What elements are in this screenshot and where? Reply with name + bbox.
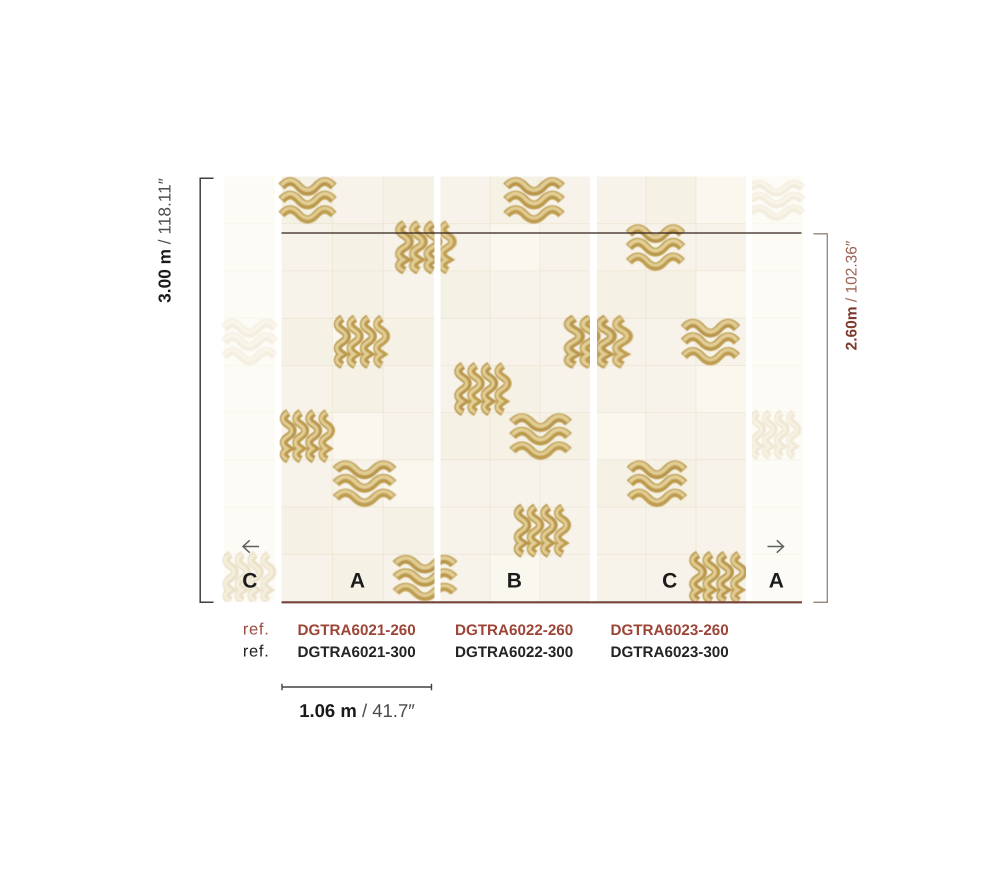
svg-text:3.00 m / 118.11″: 3.00 m / 118.11″ xyxy=(155,178,175,303)
svg-text:C: C xyxy=(662,569,677,592)
svg-text:DGTRA6023-300: DGTRA6023-300 xyxy=(611,644,729,661)
svg-text:DGTRA6023-260: DGTRA6023-260 xyxy=(611,622,729,639)
svg-text:C: C xyxy=(242,569,257,592)
svg-text:A: A xyxy=(350,569,365,592)
svg-text:DGTRA6022-260: DGTRA6022-260 xyxy=(455,622,573,639)
svg-text:A: A xyxy=(769,569,784,592)
svg-text:2.60m / 102.36″: 2.60m / 102.36″ xyxy=(844,240,861,350)
svg-text:ref.: ref. xyxy=(243,621,270,639)
svg-text:DGTRA6022-300: DGTRA6022-300 xyxy=(455,644,573,661)
svg-text:B: B xyxy=(507,569,522,592)
svg-text:DGTRA6021-260: DGTRA6021-260 xyxy=(298,622,416,639)
svg-text:DGTRA6021-300: DGTRA6021-300 xyxy=(298,644,416,661)
svg-text:1.06 m / 41.7″: 1.06 m / 41.7″ xyxy=(299,700,415,721)
svg-text:ref.: ref. xyxy=(243,643,270,661)
